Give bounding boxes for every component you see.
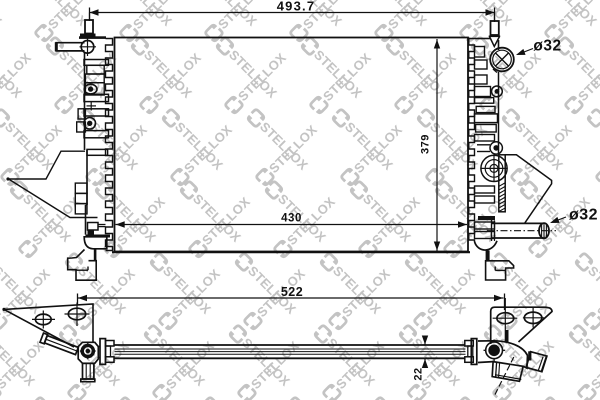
svg-text:430: 430 — [281, 213, 302, 225]
svg-text:379: 379 — [420, 134, 432, 154]
svg-text:22: 22 — [413, 367, 425, 380]
svg-text:ø32: ø32 — [533, 38, 561, 55]
svg-text:493.7: 493.7 — [277, 0, 316, 14]
svg-text:ø32: ø32 — [569, 207, 598, 224]
svg-text:522: 522 — [281, 285, 303, 299]
